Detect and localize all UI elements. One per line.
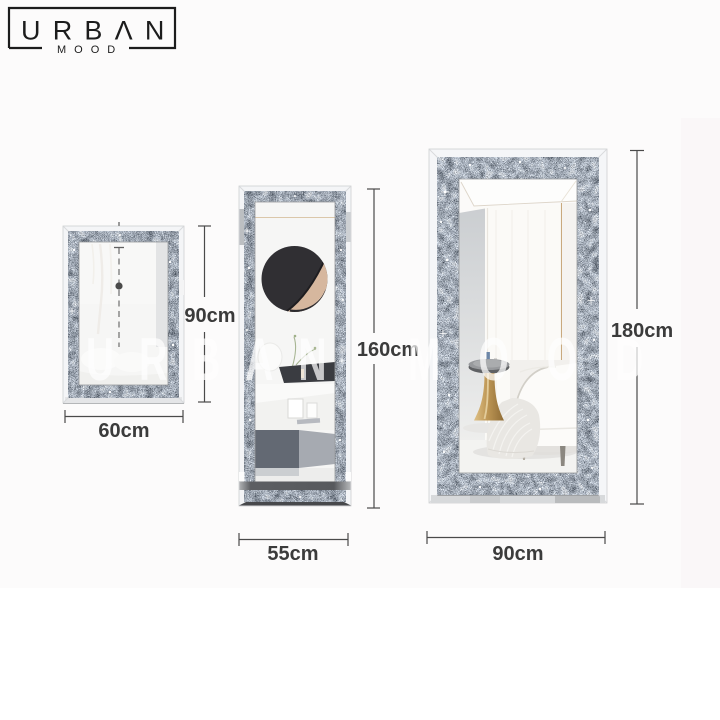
svg-text:MOOD: MOOD xyxy=(57,44,123,56)
svg-text:90cm: 90cm xyxy=(492,543,543,565)
svg-text:55cm: 55cm xyxy=(267,543,318,565)
svg-text:90cm: 90cm xyxy=(184,305,235,327)
svg-text:URBΛN: URBΛN xyxy=(21,16,177,46)
svg-text:60cm: 60cm xyxy=(98,420,149,442)
